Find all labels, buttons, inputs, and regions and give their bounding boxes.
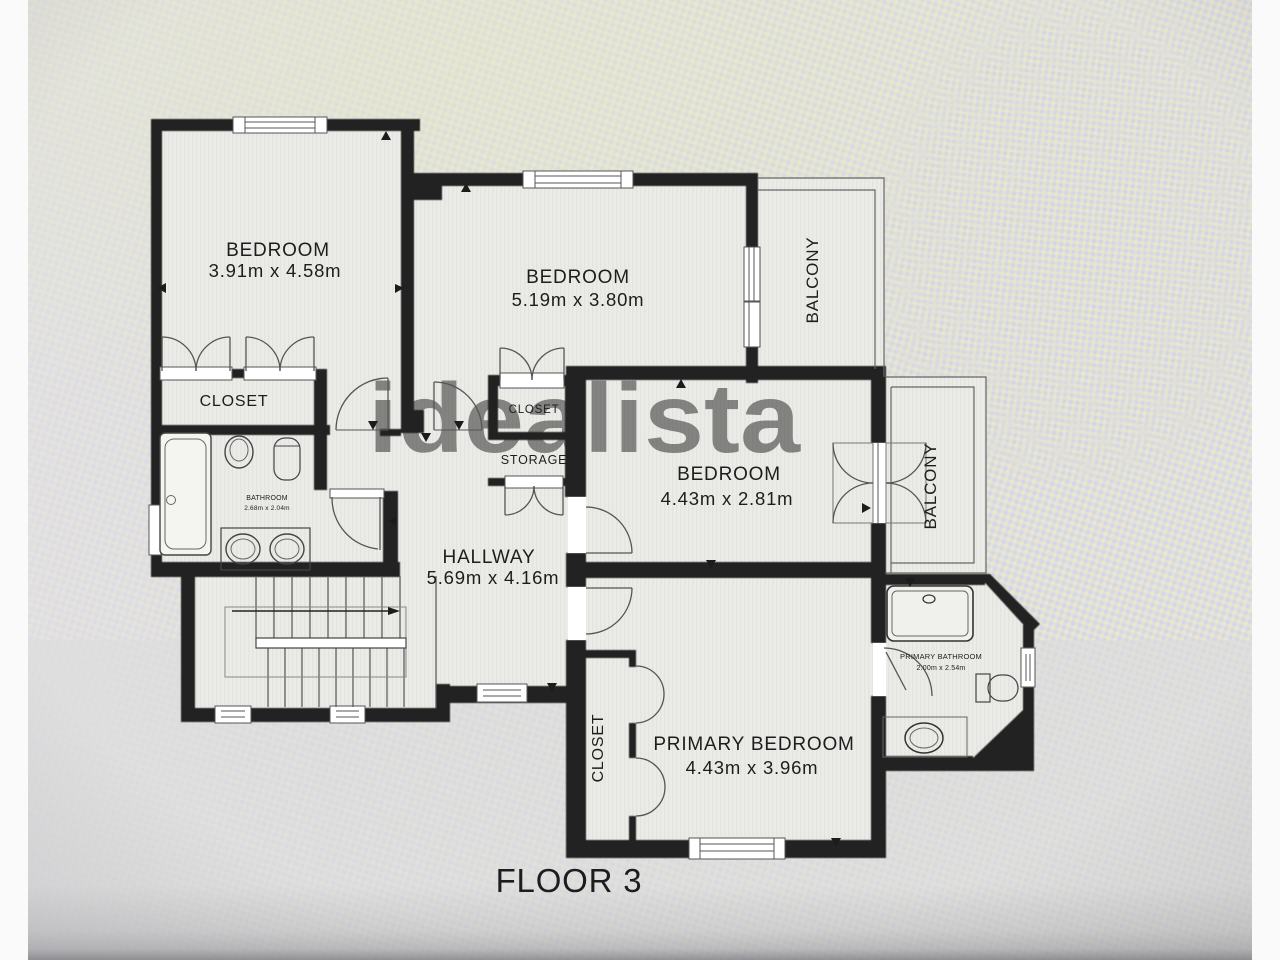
- svg-text:5.19m x 3.80m: 5.19m x 3.80m: [512, 289, 645, 310]
- svg-text:BEDROOM: BEDROOM: [526, 267, 630, 288]
- svg-text:3.91m x 4.58m: 3.91m x 4.58m: [209, 260, 342, 281]
- svg-text:2.68m x 2.04m: 2.68m x 2.04m: [244, 505, 290, 512]
- svg-text:BATHROOM: BATHROOM: [246, 495, 288, 502]
- svg-text:4.43m x 2.81m: 4.43m x 2.81m: [661, 488, 794, 509]
- svg-text:HALLWAY: HALLWAY: [443, 547, 536, 568]
- svg-text:4.43m x 3.96m: 4.43m x 3.96m: [686, 757, 819, 778]
- svg-text:PRIMARY BEDROOM: PRIMARY BEDROOM: [653, 734, 854, 755]
- svg-text:BEDROOM: BEDROOM: [677, 464, 781, 485]
- svg-text:BALCONY: BALCONY: [921, 443, 940, 530]
- svg-text:BEDROOM: BEDROOM: [226, 240, 330, 261]
- svg-text:CLOSET: CLOSET: [590, 714, 607, 783]
- svg-text:CLOSET: CLOSET: [200, 393, 269, 410]
- svg-text:STORAGE: STORAGE: [501, 453, 568, 467]
- svg-text:PRIMARY BATHROOM: PRIMARY BATHROOM: [900, 652, 982, 661]
- svg-text:5.69m x 4.16m: 5.69m x 4.16m: [427, 567, 560, 588]
- svg-text:BALCONY: BALCONY: [803, 237, 822, 324]
- svg-text:CLOSET: CLOSET: [509, 404, 560, 416]
- svg-text:2.00m x 2.54m: 2.00m x 2.54m: [917, 665, 966, 672]
- svg-text:FLOOR 3: FLOOR 3: [496, 862, 643, 899]
